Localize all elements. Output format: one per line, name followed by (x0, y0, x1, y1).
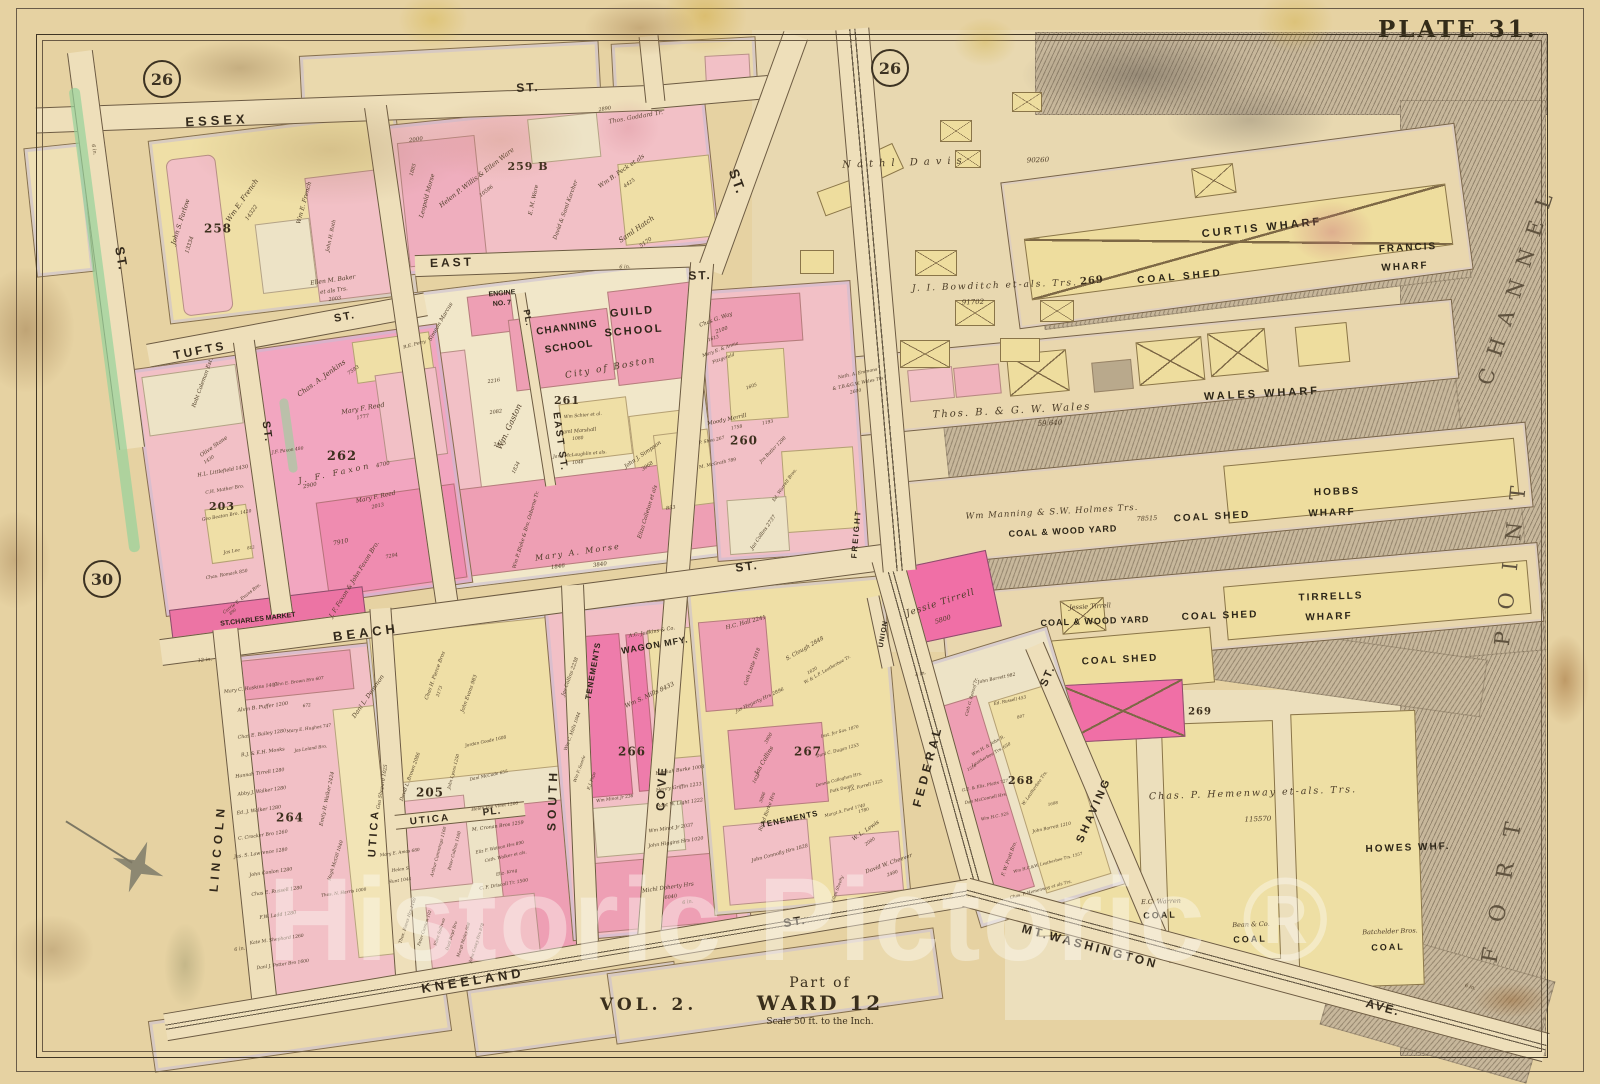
label-owner-higgins: John Higgins Hrs 1020 (648, 837, 704, 850)
label-street-utica-pl-1: UTICA (409, 812, 450, 827)
label-owner-collins-266: Jas Collins 2238 (561, 657, 580, 697)
label-num-1780: 1780 (858, 808, 870, 815)
label-owner-evens: Thos. Evens Hrs 1160 (399, 897, 418, 944)
label-owner-lawrence: Jas. S. Lawrence 1280 (234, 848, 288, 861)
label-owner-mcgrath: M. McGrath 789 (699, 459, 737, 472)
label-owner-dugan-d: Danl C. Dugan 1253 (816, 744, 860, 760)
label-owner-whc: Wm H.C. 525 (981, 812, 1010, 822)
label-wharf-howes: HOWES WHF. (1365, 841, 1450, 855)
label-owner-french-1: Wm E. French (225, 178, 260, 224)
label-wharf-tirrells-1: TIRRELLS (1298, 590, 1363, 603)
label-note-6in-4: 6 in. (89, 144, 96, 156)
label-block-264: 264 (276, 811, 304, 824)
label-owner-manning: Wm Manning & S.W. Holmes Trs. (965, 504, 1138, 522)
label-owner-pope: E.J. Pope (587, 771, 598, 790)
label-street-st-265: ST. (259, 420, 274, 443)
label-owner-barrett-2: John Barrett 1210 (1032, 823, 1071, 836)
label-owner-walker-ab: Abby J. Walker 1280 (237, 786, 286, 798)
label-owner-warren: E.C. Warren (1141, 898, 1181, 907)
label-wharf-coal-shed-269: COAL SHED (1137, 268, 1223, 286)
label-owner-goode: Jordan Goode 1608 (465, 736, 507, 749)
label-owner-crocker: C. Crocker Bro 1260 (238, 830, 288, 842)
label-owner-baker-n: 2003 (328, 296, 341, 303)
label-owner-cannon: Peter Cannon 102 (417, 910, 433, 947)
label-note-6in-3: 6 in. (234, 946, 246, 953)
label-owner-lewis: W. L. Lewis (851, 819, 880, 842)
label-owner-hemenway-2: Chas. P. Hemenway et als Trs. (1010, 879, 1073, 900)
label-owner-collins-260: Jas Collins 2737 (750, 515, 778, 552)
label-owner-stone-n: 1430 (204, 456, 216, 467)
label-owner-puffer: Alvin B. Puffer 1200 (237, 702, 288, 715)
label-block-268: 268 (1008, 775, 1034, 787)
label-street-st-top: ST. (725, 167, 748, 197)
label-num-672: 672 (303, 704, 312, 710)
label-label-engine-2: NO. 7 (493, 299, 512, 308)
label-owner-amos: Mary E. Amos 680 (380, 849, 420, 859)
label-owner-pierce-n: 3173 (437, 686, 446, 698)
label-owner-little: Cath Little 1818 (744, 647, 763, 686)
label-owner-faxon-2: J. F. Faxon & John Faxon Bro. (329, 541, 382, 620)
label-owner-french-2: Wm E. French (296, 181, 314, 225)
label-owner-mills-s: Wm S. Mills 8433 (624, 682, 675, 711)
label-note-6in-1: 6 in. (619, 265, 630, 271)
label-owner-jenkins: Chas. A. Jenkins (296, 359, 347, 399)
label-owner-barrett-1: John Barrett 982 (978, 674, 1017, 687)
label-owner-driscoll: C. F. Driscoll Tr. 1500 (479, 879, 529, 892)
map-label-layer: ESSEXST.EASTST.TUFTSST.ST.ST.EAST ST.PL.… (0, 0, 1600, 1081)
label-owner-lee: Jas Lee (223, 549, 240, 557)
label-owner-shepard-g: Geo Shepard 1025 (376, 764, 389, 810)
label-owner-fitzgerald-2: Fitzgerald (712, 354, 736, 367)
label-owner-demmon: Danl L. Demmon (352, 674, 387, 720)
label-owner-casey: John Casey Hrs 878 (469, 923, 486, 964)
label-block-262: 262 (327, 450, 357, 464)
label-owner-walker-ed: Ed. J. Walker 1280 (236, 805, 281, 816)
label-street-mt-washington-ave: AVE. (1364, 997, 1401, 1019)
label-label-guild-1: GUILD (609, 304, 654, 320)
label-coal-batchelder: COAL (1371, 942, 1405, 953)
label-street-left-st: ST. (112, 246, 130, 273)
label-owner-leopold-morse-n: 1885 (410, 163, 419, 177)
label-owner-hegarty: Jas Hegarty Hrs 2896 (735, 687, 785, 714)
label-street-kneeland: KNEELAND (420, 966, 525, 996)
label-street-union: UNION (878, 620, 890, 648)
label-street-essex-st: ST. (516, 81, 540, 95)
label-owner-willis-ware-n: 10596 (479, 185, 495, 199)
label-owner-bowditch: J. I. Bowditch et-als. Trs. (912, 279, 1078, 295)
label-street-tufts-st: ST. (333, 309, 357, 325)
label-street-pl: PL. (521, 309, 534, 327)
label-street-essex: ESSEX (185, 112, 249, 130)
label-owner-coleman: Robt Coleman Est. (191, 358, 214, 409)
label-label-engine-1: ENGINE (488, 289, 515, 299)
label-owner-renouf: Cath G. Renouf Tr. (965, 677, 980, 716)
label-owner-marshall: Saml Marshall (559, 428, 596, 437)
label-owner-lee-n: 812 (247, 545, 255, 551)
label-owner-cheever-n: 2480 (887, 871, 899, 880)
label-owner-goddard: Thos. Goddard Tr. (608, 110, 663, 126)
label-owner-baker-1: Ellen M. Baker (310, 275, 356, 288)
label-owner-sullivan: Ellen Sullivan (433, 918, 446, 947)
label-owner-haskins: Mary C. Haskins 1407 (224, 683, 278, 696)
label-owner-lewis-n: 2000 (865, 838, 877, 849)
label-owner-simpson-n: 3068 (641, 461, 655, 473)
label-owner-leland: Jas Leland Bro. (294, 745, 328, 754)
label-num-2000: 2000 (409, 136, 424, 144)
label-owner-mills-c: Wm C. Mills 1044 (565, 712, 584, 752)
label-owner-butler: Jas Butler 1298 (760, 437, 789, 466)
label-street-east-st: ST. (688, 269, 712, 283)
label-num-807: 807 (1017, 714, 1025, 720)
label-street-utica: UTICA (366, 808, 381, 857)
label-owner-platts: G.E. & Eliz. Platts 727 (961, 779, 1008, 793)
label-num-7294: 7294 (385, 553, 399, 561)
label-coal-bean: COAL (1233, 934, 1267, 945)
label-owner-faxon-sm: J.F. Faxon 480 (272, 447, 304, 456)
label-owner-merrill-n2: 1193 (762, 420, 774, 427)
label-street-east: EAST (430, 256, 474, 271)
label-owner-collins-p: Peter Collins 1100 (449, 831, 464, 871)
label-num-1518: 1518 (966, 764, 977, 773)
label-owner-doherty: Michl Doherty Hrs (642, 881, 694, 894)
label-label-channing-2: SCHOOL (544, 338, 594, 356)
label-owner-hemenway-n: 115570 (1245, 816, 1272, 825)
label-owner-mather: C.H. Mather Bro. (205, 485, 245, 497)
label-wharf-tirrells-2: WHARF (1305, 611, 1353, 624)
label-street-federal: FEDERAL (911, 723, 946, 808)
label-owner-wales-n: 59.640 (1038, 420, 1063, 429)
label-street-freight: FREIGHT (850, 509, 863, 559)
label-label-guild-2: SCHOOL (604, 322, 664, 339)
label-owner-batchelder: Batchelder Bros. (1362, 927, 1418, 936)
label-owner-marshall-n: 1080 (572, 437, 584, 443)
label-owner-tirrell-h: Hannah Tirrell 1280 (235, 768, 285, 780)
label-owner-boyd: Danl Boyd Bro (445, 921, 459, 951)
label-owner-leopold-morse: Leopold Morse (419, 173, 437, 219)
label-owner-way: Chas G. Way (699, 311, 734, 329)
label-wharf-coal-shed-south: COAL SHED (1081, 652, 1158, 667)
label-num-1605: 1605 (746, 384, 758, 393)
label-owner-evans-j: John Evans 983 (461, 675, 480, 714)
label-owner-bean: Bean & Co. (1232, 921, 1270, 929)
label-owner-perry: R.E. Perry (403, 341, 427, 352)
label-owner-russell-c: Chas E. Russell 1280 (251, 886, 303, 898)
label-owner-mclaughlin-n: 1048 (572, 461, 584, 467)
label-owner-emmons-3: 2600 (850, 389, 862, 396)
label-label-tenements-1: TENEMENTS (585, 642, 604, 701)
label-block-259b: 259 B (507, 161, 548, 173)
label-owner-mcconnell: Dan McConnell Hrs. (964, 792, 1007, 806)
label-owner-schier: Wm Schier et al. (564, 413, 602, 421)
label-wharf-francis-2: WHARF (1381, 260, 1429, 273)
label-coal-warren: COAL (1143, 910, 1177, 921)
label-owner-jessie-tirrell-n: 5800 (934, 614, 952, 626)
ward-name: WARD 12 (700, 991, 940, 1015)
label-owner-mccade: Danl McCade 655 (469, 771, 508, 784)
label-owner-instsav: Inst. for Sav. 1870 (821, 725, 860, 739)
label-block-269-b: 269 (1188, 707, 1212, 718)
label-owner-connolly: John Connolly Hrs 1828 (751, 844, 809, 864)
label-num-2082: 2082 (489, 409, 502, 416)
label-owner-hughes: Mary E. Hughes 747 (286, 725, 331, 736)
label-owner-wales: Thos. B. & G. W. Wales (932, 401, 1091, 420)
label-street-south: SOUTH (545, 769, 560, 831)
label-owner-collins-267-n1: 3900 (765, 733, 775, 745)
label-owner-farlow-n: 13334 (184, 236, 195, 255)
label-owner-lyons: John Lyons 1250 (448, 754, 462, 790)
label-owner-jenkins-n: 7593 (347, 365, 361, 377)
label-owner-searle: Wm F. Searle (573, 755, 587, 783)
label-owner-faxon-n1: 4700 (376, 461, 391, 470)
label-num-2216: 2216 (487, 378, 500, 385)
label-wharf-francis-1: FRANCIS (1379, 241, 1438, 255)
label-owner-clough: S. Clough 2848 (785, 636, 825, 663)
ward-title-block: Part of WARD 12 Scale 50 ft. to the Inch… (700, 975, 940, 1027)
label-wharf-wales: WALES WHARF (1204, 385, 1321, 403)
label-owner-monks: R.J. & E.H. Monks (241, 747, 285, 758)
label-block-258: 258 (204, 222, 232, 235)
label-street-shaving: SHAVING (1074, 775, 1114, 844)
label-owner-karcher: David & Saml Karcher (552, 179, 579, 240)
label-owner-russell-e: Ed. Russell 453 (993, 695, 1026, 706)
label-wharf-hobbs-1: HOBBS (1314, 486, 1360, 499)
label-street-lincoln: LINCOLN (208, 803, 229, 892)
label-owner-shea: P. Shea 267 (699, 437, 726, 447)
label-owner-hemenway: Chas. P. Hemenway et-als. Trs. (1149, 785, 1358, 803)
label-owner-baker-2: et als Trs. (320, 286, 348, 296)
label-owner-hunt-1: Helen S. (392, 867, 411, 874)
label-wharf-hobbs-2: WHARF (1308, 507, 1356, 520)
label-owner-reed-1n: 1777 (356, 414, 369, 422)
label-wharf-coal-shed-tirrells: COAL SHED (1181, 609, 1258, 623)
label-street-beach: BEACH (332, 622, 400, 645)
label-owner-harris: Thos. N. Harris 1000 (321, 888, 367, 899)
label-owner-littlefield: H.L. Littlefield 1430 (197, 465, 249, 479)
label-owner-manning-n: 78515 (1136, 515, 1157, 523)
label-owner-roth: John H. Roth (326, 219, 338, 252)
label-owner-minot-1: Wm Minot Jr 236 (596, 795, 634, 805)
label-owner-brown-j: John E. Brown Hrs 607 (274, 677, 324, 689)
label-block-266: 266 (618, 745, 646, 758)
label-street-mt-washington: MT.WASHINGTON (1020, 922, 1159, 971)
label-block-269-a: 269 (1080, 274, 1105, 287)
label-owner-colleton: Eliza Colleton et als (637, 485, 659, 540)
label-wharf-coal-wood-yard-1: COAL & WOOD YARD (1008, 524, 1117, 540)
label-owner-mary-morse-n2: 3840 (593, 561, 608, 569)
label-owner-burke-rn: 3986 (760, 792, 768, 804)
label-street-tufts: TUFTS (172, 339, 227, 362)
label-owner-hunt-2: Hunt 1044 (388, 878, 412, 886)
map-scale: Scale 50 ft. to the Inch. (700, 1017, 940, 1027)
label-owner-marcus: Simeon Marcus (427, 302, 454, 343)
label-owner-potter: Danl J. Potter Bro 1600 (256, 960, 309, 972)
label-street-kneeland-st: ST. (782, 914, 807, 931)
label-owner-willis-ware: Helen P. Willis & Ellen Ware (438, 147, 516, 210)
label-owner-worrell: Ed. Worrell Bros. (773, 469, 800, 504)
label-channel-channel: CHANNEL (1474, 178, 1562, 388)
label-owner-doherty-n: 6040 (664, 894, 677, 901)
label-owner-sheehy: Ellen Sheehy (831, 875, 845, 903)
label-owner-bailey: Chas E. Bailey 1280 (237, 729, 286, 741)
label-owner-minot-2: Wm Minot Jr 2037 (648, 823, 693, 834)
label-block-260: 260 (730, 434, 758, 447)
label-channel-point: POINT (1491, 463, 1533, 646)
label-owner-cummings: Arthur Cummings 1160 (431, 827, 449, 878)
label-owner-peck-n: 4425 (623, 178, 637, 190)
label-owner-nathl-davis: Nathl Davis (842, 155, 968, 170)
label-num-7910: 7910 (333, 538, 349, 548)
label-owner-cronan: M. Cronan Bros 1259 (472, 821, 525, 833)
label-note-12in: 12 in. (198, 657, 213, 664)
label-owner-goddard-n: 2890 (598, 106, 611, 114)
label-owner-jessie-tirrell-sm: Jessie Tirrell (1069, 602, 1111, 611)
label-owner-stone: Olive Stone (199, 435, 229, 458)
label-note-4in: 4 in. (915, 671, 927, 679)
label-owner-colleton-n: 853 (666, 506, 676, 513)
label-owner-conlon: John Conlon 1280 (249, 867, 293, 878)
label-owner-mary-morse-n1: 1846 (551, 563, 566, 571)
label-owner-em-ware: E. M. Ware (528, 184, 540, 216)
label-channel-fort: FORT (1478, 795, 1531, 965)
label-owner-hatch-n: 5170 (639, 237, 654, 250)
label-owner-french-1n: 14322 (245, 204, 260, 222)
label-num-1608: 1608 (1048, 801, 1059, 807)
label-owner-walker-em: Emily H. Walker 2424 (320, 771, 337, 826)
label-owner-mcgill: Hugh McGill 1040 (328, 840, 346, 881)
label-block-203: 203 (209, 501, 235, 513)
label-wharf-curtis: CURTIS WHARF (1201, 216, 1323, 241)
label-owner-faxon-n2: 2900 (303, 482, 318, 491)
label-street-shaving-st: ST. (1038, 664, 1058, 689)
label-block-261: 261 (554, 395, 580, 407)
label-owner-romack: Chas. Romack 850 (206, 570, 249, 582)
label-owner-evans-cn: 890 (229, 608, 238, 616)
label-label-channing-1: CHANNING (536, 318, 599, 338)
ward-part-of: Part of (700, 975, 940, 991)
label-wharf-coal-shed-hobbs: COAL SHED (1173, 509, 1250, 524)
label-owner-collins-267-n2: 1627 (753, 773, 763, 785)
volume-label: VOL. 2. (600, 995, 697, 1015)
label-block-205: 205 (416, 786, 444, 799)
label-street-beach-st: ST. (735, 559, 760, 575)
label-wharf-coal-wood-yard-2: COAL & WOOD YARD (1040, 615, 1149, 629)
label-note-6in-5: 6 in. (1464, 984, 1476, 992)
label-owner-gaston-n: 1834 (512, 461, 522, 475)
atlas-map-page: { "plate_title": "PLATE 31.", "watermark… (0, 0, 1600, 1081)
label-label-city-of-boston: City of Boston (565, 356, 658, 382)
label-owner-krag: Eliz. Krag (496, 869, 518, 878)
label-owner-ladd: F.W. Ladd 1280 (259, 911, 297, 921)
label-owner-merrill-n1: 1758 (731, 425, 743, 432)
label-num-1613: 1613 (708, 336, 720, 345)
label-owner-leatherbee-4: Wm H.C.&W. Leatherbee Trs. 1557 (1013, 852, 1083, 875)
label-note-6in-2: 6 in. (682, 899, 694, 906)
label-owner-reed-2n: 2013 (371, 503, 385, 511)
label-owner-mary-morse: Mary A. Morse (535, 543, 622, 564)
label-owner-nathl-davis-n: 90260 (1027, 157, 1050, 165)
label-owner-bowditch-n: 91702 (962, 299, 985, 307)
label-owner-shephard: Kate M. Shephard 1260 (250, 935, 305, 947)
label-owner-hall: H.C. Hall 2241 (725, 615, 767, 632)
